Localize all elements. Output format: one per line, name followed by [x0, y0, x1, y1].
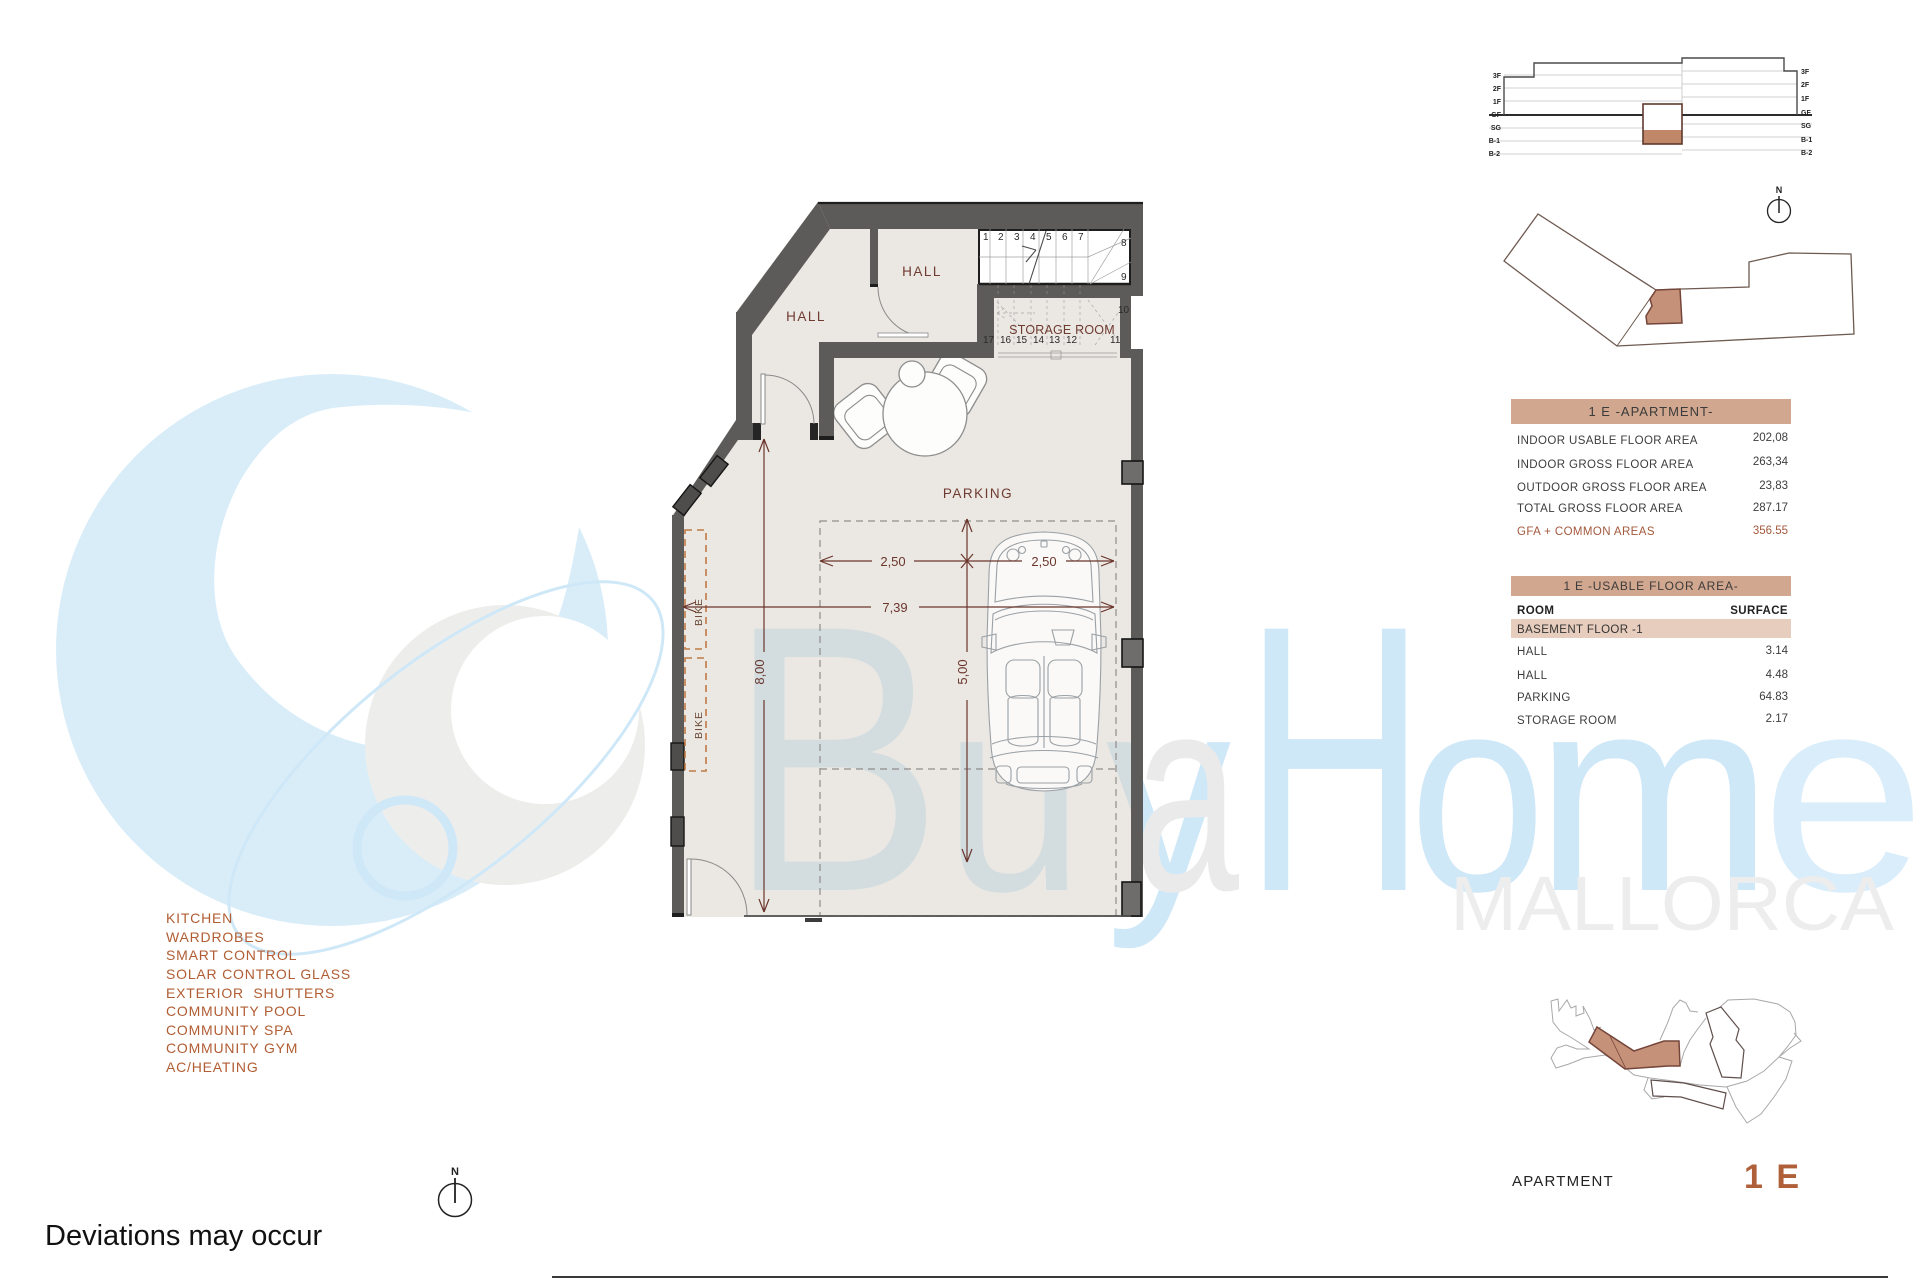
svg-text:ROOM: ROOM: [1517, 605, 1554, 617]
svg-text:GF: GF: [1491, 112, 1501, 119]
svg-text:APARTMENT: APARTMENT: [1512, 1173, 1614, 1190]
svg-text:9: 9: [1121, 272, 1127, 283]
svg-text:BIKE: BIKE: [693, 711, 705, 739]
svg-text:2,50: 2,50: [880, 554, 905, 569]
svg-text:7,39: 7,39: [882, 600, 907, 615]
svg-text:1F: 1F: [1493, 99, 1502, 106]
svg-text:4.48: 4.48: [1766, 669, 1788, 681]
svg-text:HALL: HALL: [1517, 646, 1548, 658]
svg-text:STORAGE ROOM: STORAGE ROOM: [1517, 715, 1617, 727]
svg-text:287.17: 287.17: [1753, 502, 1788, 514]
svg-text:3F: 3F: [1801, 69, 1810, 76]
svg-text:SMART CONTROL: SMART CONTROL: [166, 947, 297, 963]
svg-text:N: N: [1776, 185, 1783, 195]
svg-text:GFA + COMMON AREAS: GFA + COMMON AREAS: [1517, 526, 1655, 538]
svg-text:PARKING: PARKING: [943, 486, 1013, 501]
svg-text:3F: 3F: [1493, 73, 1502, 80]
svg-text:PARKING: PARKING: [1517, 692, 1571, 704]
svg-text:HALL: HALL: [902, 264, 942, 279]
svg-text:B-2: B-2: [1489, 151, 1500, 158]
svg-text:5,00: 5,00: [955, 659, 970, 684]
svg-text:STORAGE ROOM: STORAGE ROOM: [1009, 323, 1115, 337]
svg-text:2F: 2F: [1493, 86, 1502, 93]
svg-text:3.14: 3.14: [1766, 645, 1789, 657]
svg-text:HALL: HALL: [786, 309, 826, 324]
svg-text:HALL: HALL: [1517, 670, 1548, 682]
svg-text:TOTAL GROSS FLOOR AREA: TOTAL GROSS FLOOR AREA: [1517, 503, 1683, 515]
svg-text:8,00: 8,00: [752, 659, 767, 684]
svg-text:KITCHEN: KITCHEN: [166, 910, 233, 926]
svg-text:SG: SG: [1491, 125, 1502, 132]
svg-text:COMMUNITY SPA: COMMUNITY SPA: [166, 1022, 293, 1038]
svg-text:1F: 1F: [1801, 96, 1810, 103]
svg-text:6: 6: [1062, 232, 1068, 243]
svg-text:N: N: [451, 1166, 459, 1178]
svg-text:1 E -USABLE FLOOR AREA-: 1 E -USABLE FLOOR AREA-: [1563, 579, 1738, 593]
svg-text:COMMUNITY POOL: COMMUNITY POOL: [166, 1003, 306, 1019]
svg-text:1: 1: [983, 232, 989, 243]
svg-text:4: 4: [1030, 232, 1036, 243]
svg-text:INDOOR GROSS FLOOR AREA: INDOOR GROSS FLOOR AREA: [1517, 459, 1694, 471]
svg-text:356.55: 356.55: [1753, 525, 1788, 537]
svg-text:SG: SG: [1801, 123, 1812, 130]
svg-text:202,08: 202,08: [1753, 432, 1788, 444]
svg-text:SURFACE: SURFACE: [1730, 605, 1788, 617]
svg-text:BASEMENT FLOOR -1: BASEMENT FLOOR -1: [1517, 624, 1643, 636]
svg-text:INDOOR USABLE FLOOR AREA: INDOOR USABLE FLOOR AREA: [1517, 435, 1698, 447]
svg-text:H: H: [1244, 546, 1426, 971]
svg-text:1 E: 1 E: [1744, 1158, 1801, 1196]
svg-text:EXTERIOR SHUTTERS: EXTERIOR SHUTTERS: [166, 985, 335, 1001]
svg-text:17: 17: [983, 335, 995, 346]
svg-text:COMMUNITY GYM: COMMUNITY GYM: [166, 1040, 298, 1056]
svg-text:3: 3: [1014, 232, 1020, 243]
svg-text:23,83: 23,83: [1759, 480, 1788, 492]
svg-text:2,50: 2,50: [1031, 554, 1056, 569]
svg-text:GF: GF: [1801, 110, 1811, 117]
svg-text:B-2: B-2: [1801, 150, 1812, 157]
svg-text:MALLORCA: MALLORCA: [1450, 861, 1895, 947]
svg-text:2F: 2F: [1801, 82, 1810, 89]
svg-text:8: 8: [1121, 238, 1127, 249]
svg-text:SOLAR CONTROL GLASS: SOLAR CONTROL GLASS: [166, 966, 351, 982]
svg-text:AC/HEATING: AC/HEATING: [166, 1059, 259, 1075]
svg-text:a: a: [1134, 638, 1240, 950]
svg-text:5: 5: [1046, 232, 1052, 243]
svg-text:1 E -APARTMENT-: 1 E -APARTMENT-: [1588, 404, 1713, 419]
svg-text:OUTDOOR GROSS FLOOR AREA: OUTDOOR GROSS FLOOR AREA: [1517, 482, 1707, 494]
svg-text:2.17: 2.17: [1766, 713, 1788, 725]
svg-text:2: 2: [998, 232, 1004, 243]
svg-text:7: 7: [1078, 232, 1084, 243]
svg-text:Deviations may occur: Deviations may occur: [45, 1220, 323, 1252]
svg-text:10: 10: [1118, 305, 1130, 316]
svg-text:263,34: 263,34: [1753, 456, 1789, 468]
svg-text:B-1: B-1: [1489, 138, 1500, 145]
svg-text:64.83: 64.83: [1759, 691, 1788, 703]
svg-text:B-1: B-1: [1801, 137, 1812, 144]
svg-text:WARDROBES: WARDROBES: [166, 929, 264, 945]
